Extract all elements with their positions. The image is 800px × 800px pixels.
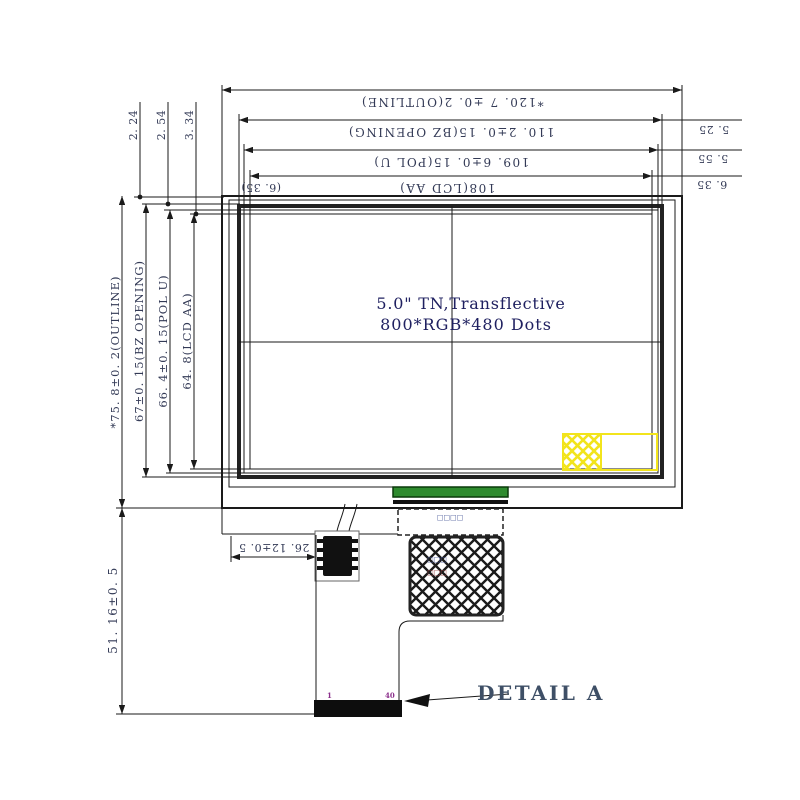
dim-bz-opening-height: 67±0. 15(BZ OPENING) — [132, 260, 146, 422]
top-dimension-lines: *120. 7 ±0. 2(OUTLINE) 110. 2±0. 15(BZ O… — [222, 85, 742, 214]
pin-number-last: 40 — [385, 691, 395, 700]
green-strip — [393, 487, 508, 497]
yellow-hatch-box — [563, 434, 601, 470]
dim-aa-left-offset: (6. 35) — [241, 181, 281, 194]
dim-pol-width: 109. 6±0. 15(POL U) — [373, 155, 529, 169]
driver-ic — [315, 504, 359, 581]
panel-title-line1: 5.0" TN,Transflective — [376, 294, 565, 313]
lcd-module-engineering-drawing: 5.0" TN,Transflective 800*RGB*480 Dots *… — [0, 0, 800, 800]
detail-a-label: DETAIL A — [477, 681, 605, 705]
adhesive-hatch-region: □□□ □□□ — [410, 537, 503, 615]
hatch-label-2: □□□ — [427, 569, 447, 577]
dim-top-offset-3: 3. 34 — [183, 110, 196, 141]
yellow-highlight-region — [563, 434, 657, 470]
dim-pol-height: 66. 4±0. 15(POL U) — [156, 274, 170, 407]
fpc-offset-dimension: 26. 12±0. 5 — [231, 536, 316, 562]
dim-top-offset-1: 2. 24 — [127, 110, 140, 141]
dim-aa-height: 64. 8(LCD AA) — [180, 292, 194, 389]
hatch-label-1: □□□ — [427, 556, 447, 564]
ic-body — [323, 536, 352, 576]
dim-fpc-height: 51. 16±0. 5 — [106, 566, 120, 654]
dim-outline-width: *120. 7 ±0. 2(OUTLINE) — [360, 95, 543, 109]
detail-a-callout: DETAIL A — [404, 681, 605, 707]
pin-number-first: 1 — [327, 691, 332, 700]
fpc-connector-bar — [314, 700, 402, 717]
panel-description: 5.0" TN,Transflective 800*RGB*480 Dots — [376, 294, 565, 334]
stiffener-box: □□□□ — [398, 509, 503, 535]
dim-outline-height: *75. 8±0. 2(OUTLINE) — [108, 276, 122, 429]
top-left-offset-leaders: 2. 24 2. 54 3. 34 — [127, 102, 250, 216]
strip-underline — [393, 500, 508, 504]
module-body — [222, 196, 682, 508]
fpc-height-dimension: 51. 16±0. 5 — [106, 508, 316, 714]
stiffener-label: □□□□ — [437, 514, 463, 522]
dim-right-offset-1: 5. 25 — [699, 123, 730, 136]
dim-bz-opening-width: 110. 2±0. 15(BZ OPENING) — [347, 125, 554, 139]
panel-title-line2: 800*RGB*480 Dots — [380, 315, 552, 334]
backlight-connector-strip — [393, 487, 508, 504]
dim-fpc-offset: 26. 12±0. 5 — [239, 541, 310, 554]
dim-right-offset-2: 5. 55 — [698, 152, 729, 165]
dim-aa-width: 108(LCD AA) — [399, 181, 496, 195]
dim-right-offset-3: 6. 35 — [697, 178, 728, 191]
detail-a-arrowhead — [404, 694, 430, 707]
dim-top-offset-2: 2. 54 — [155, 110, 168, 141]
